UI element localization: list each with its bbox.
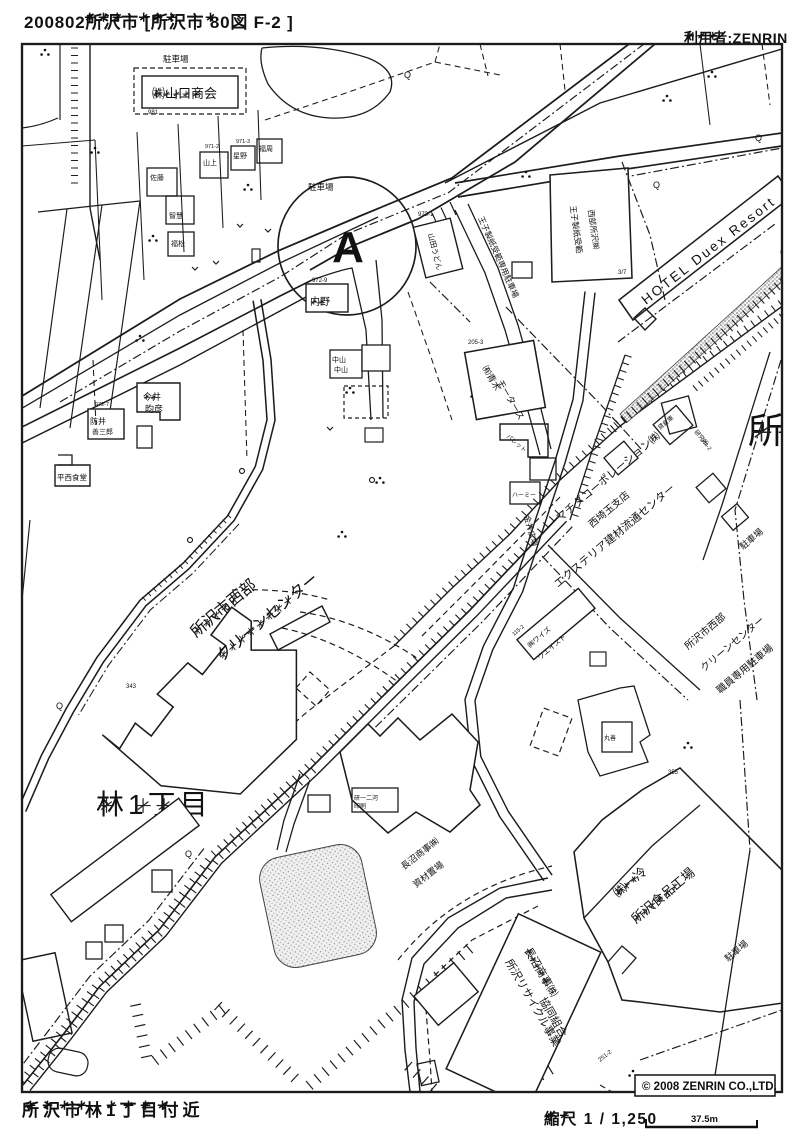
svg-text:© 2008 ZENRIN CO.,LTD.: © 2008 ZENRIN CO.,LTD. bbox=[642, 1081, 777, 1093]
svg-text:343: 343 bbox=[126, 684, 137, 690]
svg-text:205-3: 205-3 bbox=[468, 340, 484, 346]
svg-text:林1丁目: 林1丁目 bbox=[96, 789, 212, 820]
svg-text:Q: Q bbox=[653, 180, 660, 190]
svg-text:エクステリア建材流通センター: エクステリア建材流通センター bbox=[551, 481, 678, 591]
svg-text:971-3: 971-3 bbox=[236, 139, 250, 145]
svg-text:駐車場: 駐車場 bbox=[163, 54, 189, 64]
svg-text:佐藤: 佐藤 bbox=[150, 173, 164, 182]
svg-text:355: 355 bbox=[668, 770, 679, 776]
svg-text:37.5m: 37.5m bbox=[691, 1114, 718, 1125]
svg-text:981: 981 bbox=[148, 110, 159, 116]
svg-text:研一二河: 研一二河 bbox=[354, 794, 378, 802]
svg-text:972-9: 972-9 bbox=[312, 278, 328, 284]
svg-text:パレット: パレット bbox=[505, 433, 528, 454]
svg-text:駐車場: 駐車場 bbox=[737, 526, 765, 552]
svg-text:今井: 今井 bbox=[143, 391, 161, 402]
svg-text:山上: 山上 bbox=[203, 158, 217, 167]
svg-text:Q: Q bbox=[185, 849, 192, 859]
svg-text:善三郎: 善三郎 bbox=[92, 427, 113, 436]
svg-text:中山: 中山 bbox=[334, 365, 348, 374]
svg-text:971-2: 971-2 bbox=[205, 144, 219, 150]
svg-text:駐車場: 駐車場 bbox=[308, 182, 334, 192]
svg-text:Q: Q bbox=[404, 70, 411, 80]
svg-text:Q: Q bbox=[56, 701, 63, 711]
svg-text:福松: 福松 bbox=[171, 239, 185, 248]
svg-text:星野: 星野 bbox=[233, 152, 247, 160]
svg-text:王子製紙受範専用駐車場: 王子製紙受範専用駐車場 bbox=[476, 215, 521, 299]
svg-text:防井: 防井 bbox=[90, 416, 106, 426]
svg-text:印刷: 印刷 bbox=[354, 802, 366, 810]
svg-text:丸善: 丸善 bbox=[604, 734, 616, 742]
svg-text:所沢: 所沢 bbox=[748, 410, 800, 451]
svg-text:972-7: 972-7 bbox=[95, 402, 109, 408]
svg-text:福周: 福周 bbox=[259, 144, 273, 153]
svg-text:Q: Q bbox=[755, 133, 762, 143]
svg-text:智慧: 智慧 bbox=[169, 211, 183, 220]
svg-text:昀彦: 昀彦 bbox=[145, 403, 163, 414]
svg-text:㈱山口商会: ㈱山口商会 bbox=[152, 86, 217, 101]
svg-text:973-1: 973-1 bbox=[418, 212, 434, 218]
svg-text:貸倉庫: 貸倉庫 bbox=[656, 414, 675, 432]
svg-text:ハーミー: ハーミー bbox=[512, 493, 536, 499]
svg-text:内野: 内野 bbox=[310, 295, 330, 308]
svg-text:中山: 中山 bbox=[332, 355, 346, 364]
svg-text:3/7: 3/7 bbox=[618, 270, 627, 276]
svg-text:A: A bbox=[332, 223, 364, 272]
svg-text:344-2: 344-2 bbox=[698, 437, 712, 452]
svg-text:平西食堂: 平西食堂 bbox=[57, 472, 87, 482]
svg-text:251-2: 251-2 bbox=[598, 1049, 614, 1064]
